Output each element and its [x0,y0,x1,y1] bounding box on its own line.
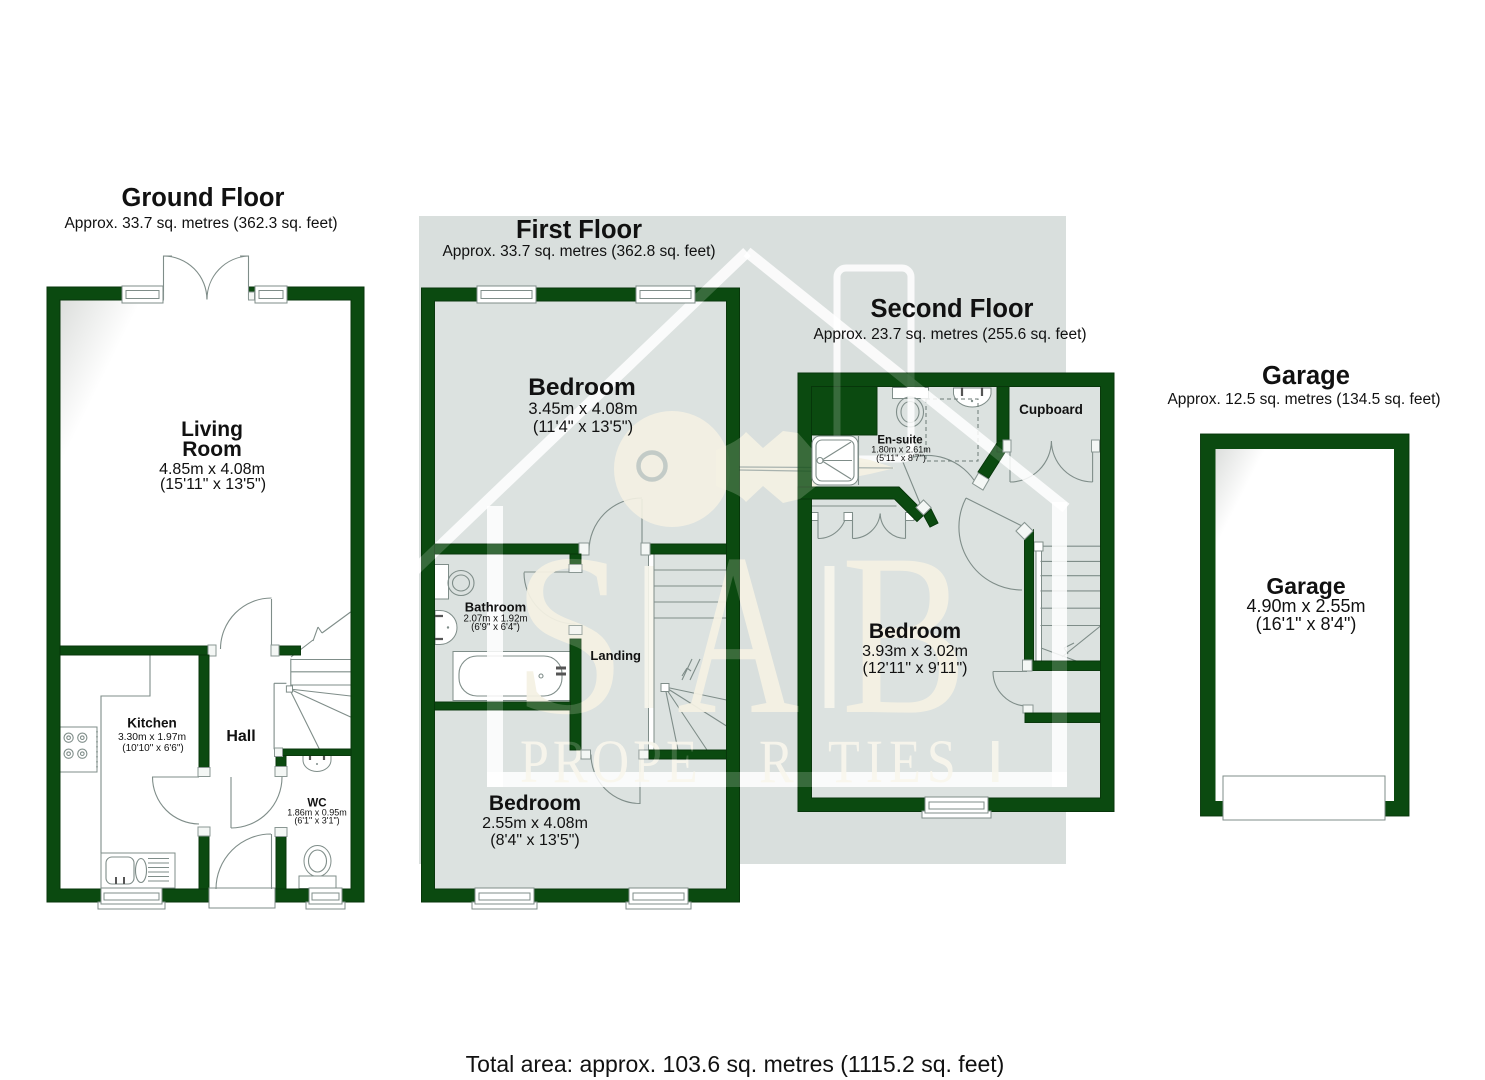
svg-text:Approx. 12.5 sq. metres (134.5: Approx. 12.5 sq. metres (134.5 sq. feet) [1167,391,1440,408]
svg-text:Approx. 33.7 sq. metres (362.3: Approx. 33.7 sq. metres (362.3 sq. feet) [64,215,337,232]
svg-text:Room: Room [182,438,242,461]
svg-text:Garage: Garage [1262,362,1350,390]
svg-text:Hall: Hall [226,728,255,745]
svg-text:2.55m x 4.08m: 2.55m x 4.08m [482,815,588,832]
svg-text:Bedroom: Bedroom [528,374,636,401]
svg-text:(8'4" x 13'5"): (8'4" x 13'5") [490,832,580,849]
svg-text:4.90m x 2.55m: 4.90m x 2.55m [1246,596,1365,616]
svg-text:Total area: approx. 103.6 sq.: Total area: approx. 103.6 sq. metres (11… [466,1051,1005,1077]
svg-text:PROPE: PROPE [520,728,702,796]
svg-text:Bedroom: Bedroom [869,620,961,643]
svg-text:(11'4" x 13'5"): (11'4" x 13'5") [533,418,633,436]
svg-text:(16'1" x 8'4"): (16'1" x 8'4") [1256,614,1357,634]
svg-text:Second Floor: Second Floor [871,295,1034,323]
svg-text:Approx. 23.7 sq. metres (255.6: Approx. 23.7 sq. metres (255.6 sq. feet) [813,326,1086,343]
svg-text:(5'11" x 8'7"): (5'11" x 8'7") [876,453,926,463]
svg-text:Landing: Landing [590,648,641,663]
svg-text:(15'11" x 13'5"): (15'11" x 13'5") [160,476,266,493]
svg-text:(6'1" x 3'1"): (6'1" x 3'1") [294,816,339,826]
svg-text:3.45m x 4.08m: 3.45m x 4.08m [528,400,637,418]
svg-text:3.93m x 3.02m: 3.93m x 3.02m [862,643,968,660]
svg-text:(10'10" x 6'6"): (10'10" x 6'6") [122,743,184,754]
svg-text:R: R [759,728,794,796]
svg-text:Approx. 33.7 sq. metres (362.8: Approx. 33.7 sq. metres (362.8 sq. feet) [442,243,715,260]
svg-text:(6'9" x 6'4"): (6'9" x 6'4") [471,622,520,633]
svg-text:Kitchen: Kitchen [127,716,177,731]
svg-text:TIES: TIES [828,728,962,796]
svg-text:First Floor: First Floor [516,216,642,244]
svg-text:Bedroom: Bedroom [489,792,581,815]
svg-text:3.30m x 1.97m: 3.30m x 1.97m [118,732,186,743]
svg-text:Ground Floor: Ground Floor [122,184,285,212]
svg-text:Cupboard: Cupboard [1019,402,1083,417]
svg-text:Bathroom: Bathroom [465,600,526,615]
svg-text:(12'11" x 9'11"): (12'11" x 9'11") [863,660,968,677]
